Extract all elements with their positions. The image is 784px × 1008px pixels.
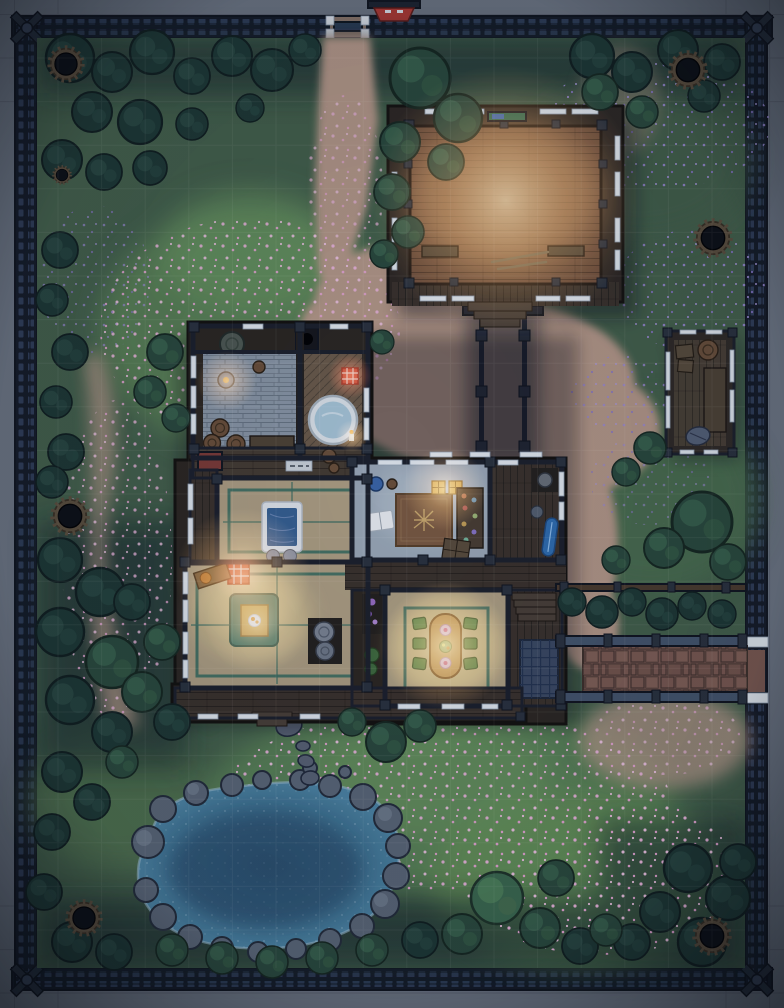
- vignette: [0, 0, 784, 1008]
- battle-map: [0, 0, 784, 1008]
